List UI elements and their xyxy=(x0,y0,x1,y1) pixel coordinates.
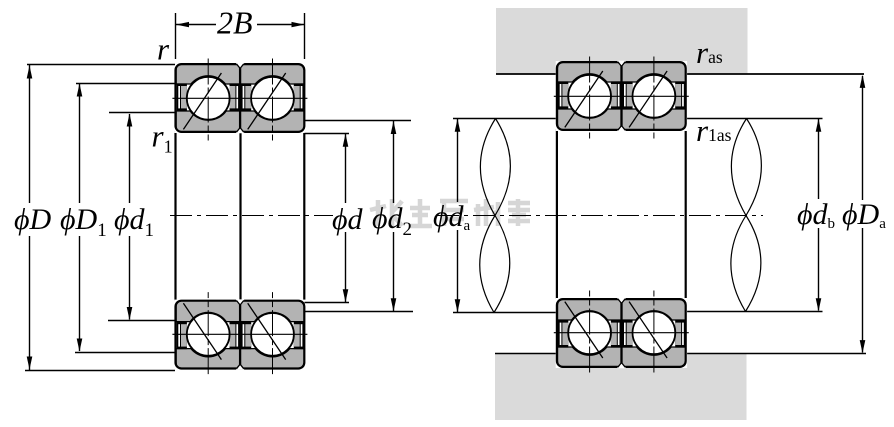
svg-text:r: r xyxy=(157,32,170,67)
svg-text:2B: 2B xyxy=(217,5,253,41)
svg-text:ϕD: ϕD xyxy=(14,203,52,236)
svg-text:ϕd: ϕd xyxy=(332,203,364,236)
